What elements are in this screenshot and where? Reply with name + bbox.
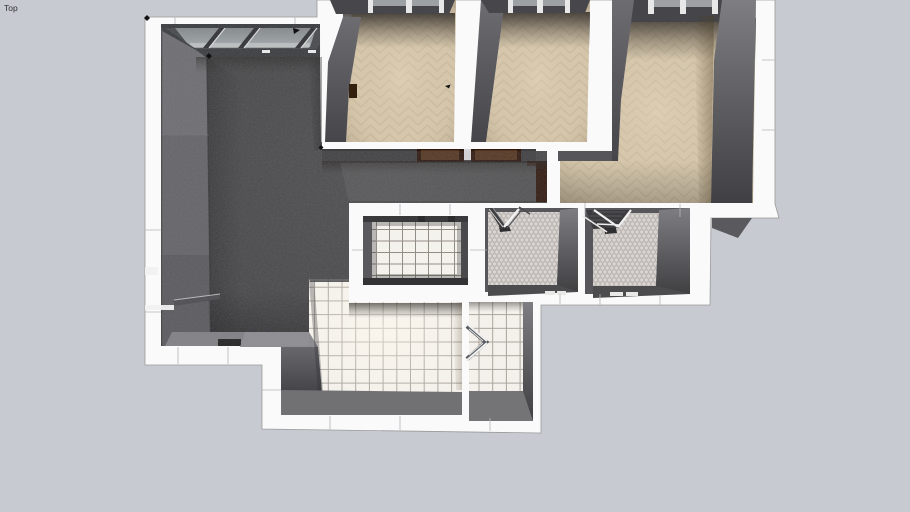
svg-text:Top: Top: [4, 3, 18, 13]
